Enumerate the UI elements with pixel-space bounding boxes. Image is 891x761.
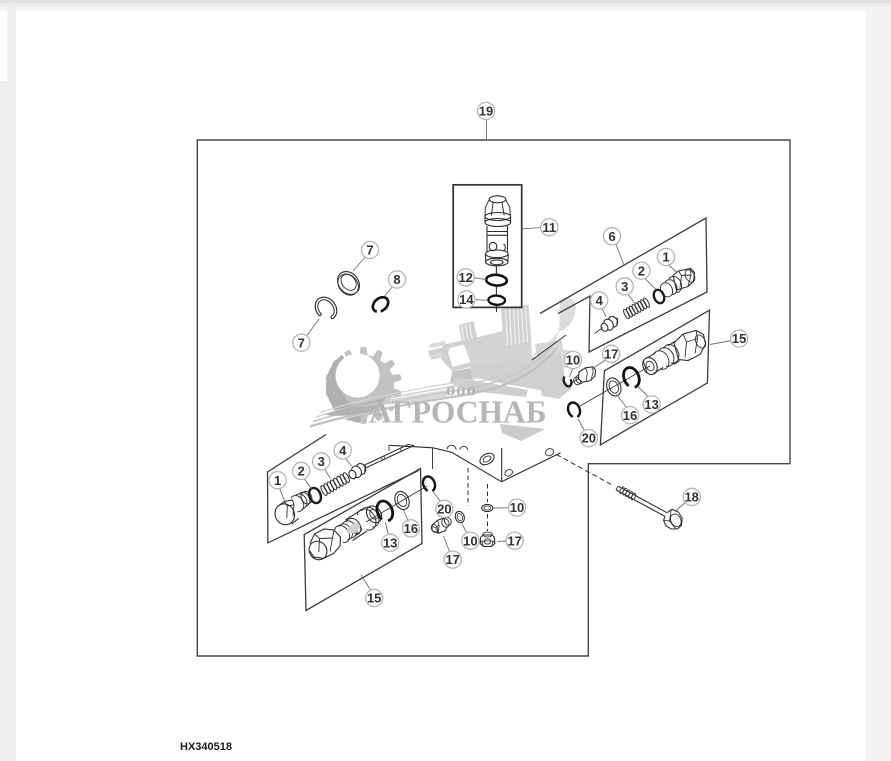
svg-text:3: 3 — [318, 454, 325, 469]
svg-text:10: 10 — [463, 533, 477, 548]
svg-text:3: 3 — [621, 279, 628, 294]
svg-text:13: 13 — [644, 397, 658, 412]
svg-text:15: 15 — [732, 331, 746, 346]
svg-text:HX340518: HX340518 — [180, 741, 232, 753]
svg-text:1: 1 — [662, 250, 669, 265]
svg-text:6: 6 — [608, 229, 615, 244]
svg-text:15: 15 — [367, 591, 381, 606]
svg-text:18: 18 — [684, 490, 698, 505]
svg-text:4: 4 — [596, 293, 604, 308]
svg-text:17: 17 — [507, 533, 521, 548]
svg-text:8: 8 — [393, 272, 400, 287]
svg-text:10: 10 — [566, 353, 580, 368]
svg-text:4: 4 — [339, 443, 347, 458]
svg-text:14: 14 — [459, 292, 474, 307]
svg-text:1: 1 — [274, 473, 281, 488]
svg-text:16: 16 — [623, 408, 637, 423]
svg-text:11: 11 — [542, 220, 556, 235]
svg-text:20: 20 — [437, 501, 451, 516]
svg-text:17: 17 — [604, 346, 618, 361]
svg-text:19: 19 — [479, 104, 493, 119]
svg-text:17: 17 — [445, 552, 459, 567]
svg-text:12: 12 — [458, 270, 472, 285]
svg-text:АГРОСНАБ: АГРОСНАБ — [369, 395, 547, 430]
svg-text:13: 13 — [383, 535, 397, 550]
svg-text:10: 10 — [510, 500, 524, 515]
svg-text:7: 7 — [298, 335, 305, 350]
svg-text:7: 7 — [366, 243, 373, 258]
svg-text:20: 20 — [582, 431, 596, 446]
svg-text:2: 2 — [638, 263, 645, 278]
svg-text:2: 2 — [297, 464, 304, 479]
svg-text:16: 16 — [404, 521, 418, 536]
